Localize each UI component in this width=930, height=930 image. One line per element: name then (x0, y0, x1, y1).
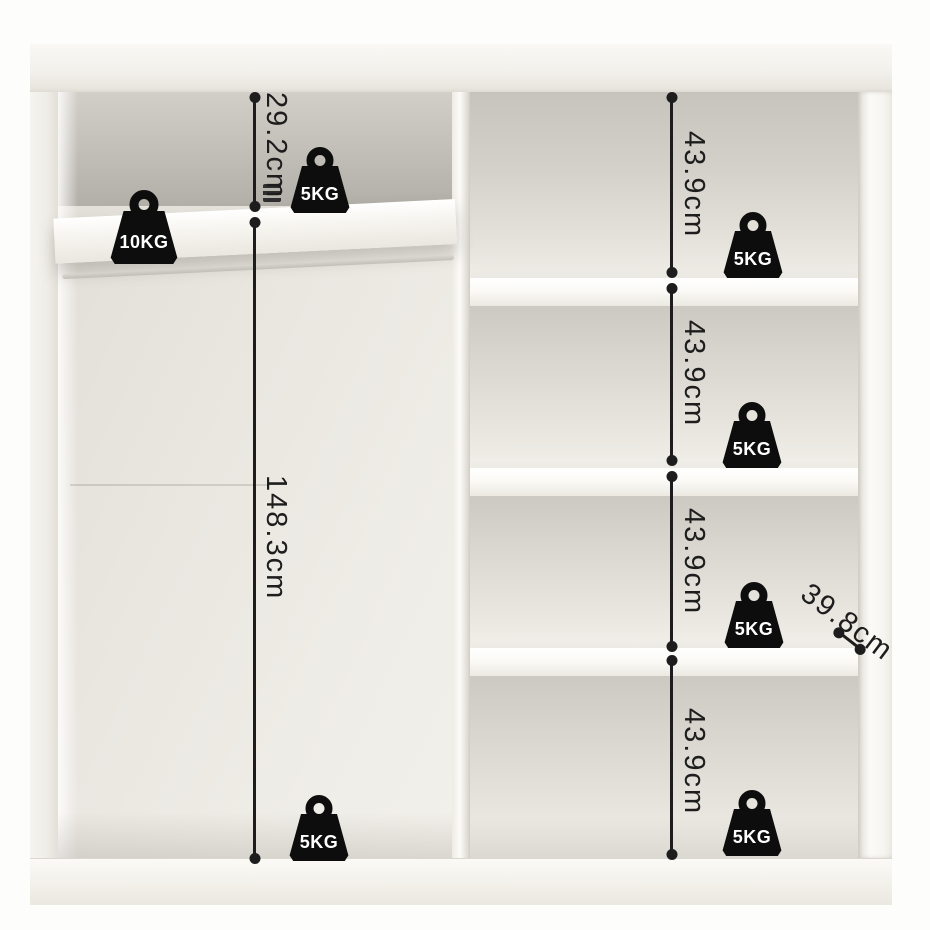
dimension-label-left-top: 29.2cm (261, 92, 290, 199)
dimension-line-left-main (253, 221, 256, 860)
weight-label: 5KG (733, 827, 772, 848)
left-wall-highlight (58, 92, 78, 858)
weight-body: 10KG (110, 211, 178, 264)
weight-body: 5KG (289, 814, 349, 861)
left-side-panel (30, 92, 58, 858)
weight-5kg-icon-right-2: 5KG (722, 402, 782, 468)
weight-label: 5KG (301, 184, 340, 205)
weight-body: 5KG (723, 231, 783, 278)
right-compartment (470, 92, 858, 858)
dimension-label-right-4: 43.9cm (679, 708, 708, 815)
weight-5kg-icon-left-top: 5KG (290, 147, 350, 213)
dimension-line-right-4 (670, 659, 673, 856)
weight-5kg-icon-left-bottom: 5KG (289, 795, 349, 861)
weight-10kg-icon: 10KG (110, 190, 178, 264)
back-panel-seam (70, 484, 270, 486)
weight-label: 5KG (300, 832, 339, 853)
dimension-line-right-3 (670, 475, 673, 648)
right-side-panel (858, 92, 892, 858)
right-cell-2 (470, 306, 858, 468)
weight-label: 10KG (119, 232, 168, 253)
bottom-panel (30, 858, 892, 905)
right-cell-4 (470, 676, 858, 858)
weight-5kg-icon-right-1: 5KG (723, 212, 783, 278)
weight-body: 5KG (724, 601, 784, 648)
weight-label: 5KG (733, 439, 772, 460)
dimension-line-right-2 (670, 287, 673, 462)
dimension-label-right-2: 43.9cm (679, 320, 708, 427)
weight-5kg-icon-right-3: 5KG (724, 582, 784, 648)
weight-body: 5KG (722, 421, 782, 468)
weight-body: 5KG (290, 166, 350, 213)
dimension-label-right-3: 43.9cm (679, 508, 708, 615)
right-cell-1 (470, 92, 858, 278)
weight-label: 5KG (734, 249, 773, 270)
weight-5kg-icon-right-bottom: 5KG (722, 790, 782, 856)
shelf-3 (470, 648, 858, 676)
dimension-line-right-1 (670, 96, 673, 274)
right-cell-3 (470, 496, 858, 648)
top-panel (30, 44, 892, 92)
dimension-label-left-height: 148.3cm (261, 475, 290, 600)
shelf-2 (470, 468, 858, 496)
dimension-line-left-top (253, 96, 256, 208)
weight-label: 5KG (735, 619, 774, 640)
weight-body: 5KG (722, 809, 782, 856)
dimension-label-right-1: 43.9cm (679, 131, 708, 238)
wardrobe-dimension-diagram: 29.2cm 148.3cm 43.9cm 43.9cm 43.9cm 43.9… (0, 0, 930, 930)
shelf-1 (470, 278, 858, 306)
